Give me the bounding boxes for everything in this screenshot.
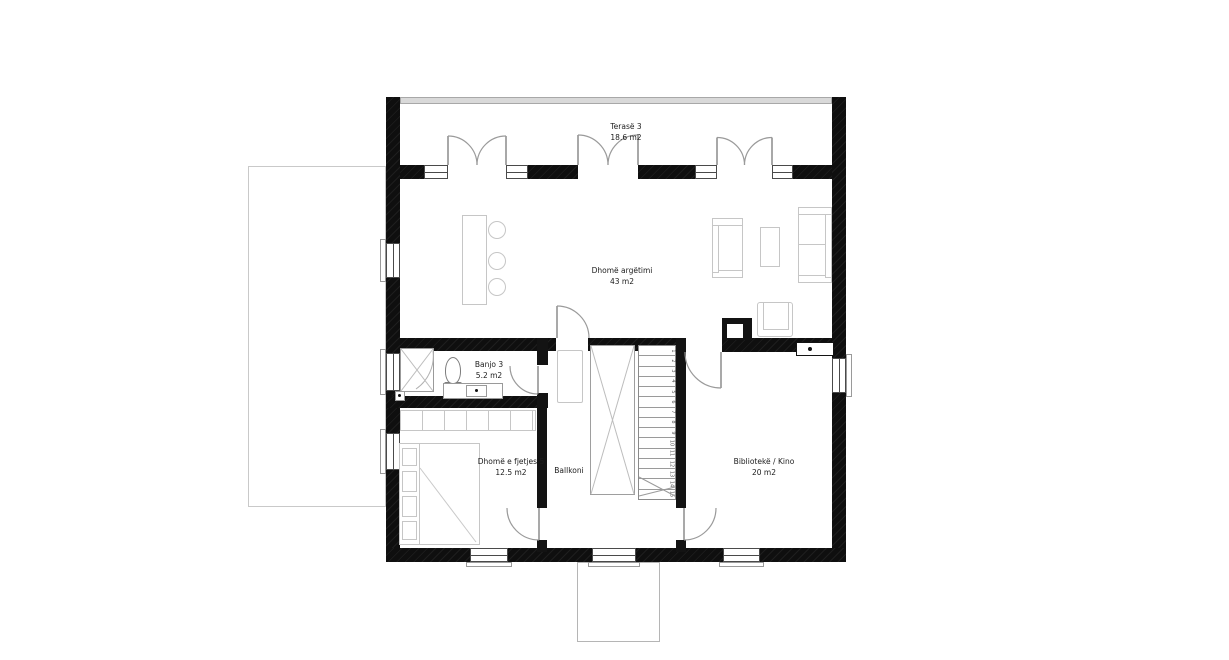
room-name: Dhomë e fjetjes 5 [478, 457, 544, 468]
bedroom-window-south [470, 548, 508, 562]
stair-tread: 9 [639, 428, 675, 438]
door-bedroom [507, 508, 539, 540]
door-library-hall [684, 508, 716, 540]
room-label-bedroom: Dhomë e fjetjes 5 12.5 m2 [478, 457, 544, 478]
window-sill [588, 562, 640, 567]
chimney-flue [727, 324, 743, 338]
window-sill [380, 429, 386, 474]
room-label-living: Dhomë argëtimi 43 m2 [592, 266, 653, 287]
hall-desk [557, 350, 583, 403]
bathroom-east-wall [537, 338, 548, 365]
toilet-bowl [445, 357, 461, 384]
bar-stool [488, 278, 506, 296]
bedroom-window-west [386, 433, 400, 470]
window-sill [466, 562, 512, 567]
door-living-library [685, 352, 721, 388]
room-area: 12.5 m2 [478, 468, 544, 479]
sofa [798, 207, 832, 283]
room-area: 43 m2 [592, 277, 653, 288]
shower [400, 348, 434, 392]
pillow [402, 521, 417, 540]
stair-tread: 5 [639, 387, 675, 397]
terrace-wall-segment [638, 165, 695, 179]
window-sill [719, 562, 764, 567]
exterior-wall-left [386, 97, 400, 562]
pillow [402, 496, 417, 517]
stair-tread: 12 [639, 459, 675, 469]
library-window-south [723, 548, 760, 562]
window-sill [380, 239, 386, 282]
terrace-parapet [400, 97, 832, 104]
exterior-wall-right [832, 97, 846, 562]
bar-stool [488, 252, 506, 270]
balcony-door-south [592, 548, 636, 562]
lower-roof-outline [248, 166, 386, 507]
balcony-outline [577, 562, 660, 642]
room-name: Banjo 3 [475, 360, 503, 371]
living-window-west [386, 243, 400, 278]
armchair [757, 302, 793, 337]
stair-tread: 2 [639, 356, 675, 366]
room-label-library: Bibliotekë / Kino 20 m2 [734, 457, 795, 478]
window [695, 165, 717, 179]
flue-dot [808, 347, 812, 351]
room-name: Terasë 3 [610, 122, 641, 133]
mattress-edge [419, 443, 420, 545]
library-window-east [832, 358, 846, 393]
terrace-french-door [448, 136, 506, 165]
window [506, 165, 528, 179]
pillow [402, 448, 417, 466]
floor-drain-dot [398, 394, 401, 397]
stair-tread: 1 [639, 346, 675, 356]
window-sill [846, 354, 852, 397]
room-area: 20 m2 [734, 468, 795, 479]
room-label-terrace: Terasë 3 18.6 m2 [610, 122, 641, 143]
bath-window-west [386, 353, 400, 391]
door-living-hall [557, 306, 589, 338]
sink-drain-dot [475, 389, 478, 392]
stair-tread: 15 [639, 490, 675, 499]
room-name: Bibliotekë / Kino [734, 457, 795, 468]
room-name: Dhomë argëtimi [592, 266, 653, 277]
window-sill [380, 349, 386, 395]
window [424, 165, 448, 179]
room-label-bath: Banjo 3 5.2 m2 [475, 360, 503, 381]
library-west-wall-stub [676, 540, 686, 552]
bar-stool [488, 221, 506, 239]
wardrobe [400, 410, 536, 431]
stair-tread: 10 [639, 438, 675, 448]
door-bathroom [510, 366, 538, 394]
coffee-table [760, 227, 780, 267]
room-label-balcony: Ballkoni [554, 466, 583, 477]
terrace-wall-segment [528, 165, 578, 179]
terrace-wall-segment [400, 165, 424, 179]
bedroom-east-wall-stub [537, 540, 547, 552]
stair-tread: 7 [639, 408, 675, 418]
kitchen-island [462, 215, 487, 305]
stair-tread: 6 [639, 397, 675, 407]
terrace-wall-segment [793, 165, 832, 179]
stair-tread: 3 [639, 367, 675, 377]
sofa [712, 218, 743, 278]
bed [399, 443, 480, 545]
wall-recess [796, 342, 834, 356]
stair-tread: 4 [639, 377, 675, 387]
staircase: 1 2 3 4 5 6 7 8 9 10 11 12 13 14 15 [638, 345, 676, 500]
room-area: 5.2 m2 [475, 371, 503, 382]
bathroom-east-wall [537, 393, 548, 408]
stair-tread: 14 [639, 479, 675, 489]
floor-plan: 1 2 3 4 5 6 7 8 9 10 11 12 13 14 15 [0, 0, 1229, 660]
room-name: Ballkoni [554, 466, 583, 477]
library-west-wall [676, 338, 686, 508]
stair-tread: 8 [639, 418, 675, 428]
terrace-french-door [717, 138, 772, 166]
window [772, 165, 793, 179]
room-area: 18.6 m2 [610, 133, 641, 144]
stair-tread: 13 [639, 469, 675, 479]
stair-void [590, 345, 635, 495]
pillow [402, 471, 417, 492]
stair-tread: 11 [639, 449, 675, 459]
